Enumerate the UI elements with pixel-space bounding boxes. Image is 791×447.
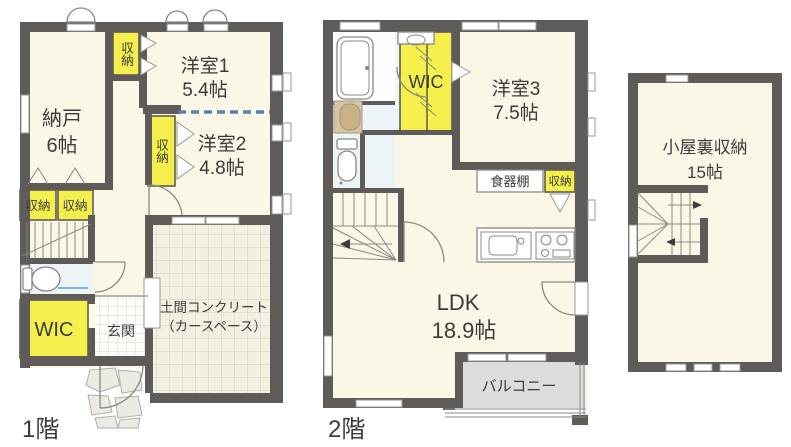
floor2-walls-part: [452, 162, 575, 170]
casement-window-icons-part: [283, 73, 291, 91]
stone-path-part: [118, 370, 142, 393]
attic-windows-part: [666, 364, 686, 371]
washroom-sink-icon-part: [398, 32, 434, 44]
toilet-2f-icon-part: [337, 139, 357, 149]
floor1-walls-part: [143, 105, 181, 114]
attic-walls-part: [628, 255, 708, 263]
floor1-windows-part: [272, 75, 282, 91]
attic-room-size: 15帖: [687, 163, 723, 182]
floor2-windows-part: [588, 200, 595, 220]
floor2-windows-part: [462, 22, 498, 30]
attic-walls-part: [628, 73, 782, 83]
room-label-yoshitsu2: 洋室2: [198, 133, 247, 155]
doma-label-line1: 土間コンクリート: [160, 300, 268, 315]
attic-walls-part: [628, 73, 638, 372]
floor2-walls-part: [360, 130, 452, 135]
attic-walls-part: [700, 218, 708, 263]
floor2-windows-part: [588, 73, 595, 91]
floor1-walls-part: [20, 356, 150, 366]
room-label-nando: 納戸: [42, 107, 82, 130]
floor1-walls-part: [113, 75, 139, 81]
genkan-label: 玄関: [107, 323, 135, 339]
floor1-walls-part: [145, 114, 152, 185]
bathtub-icon-part: [365, 66, 369, 70]
toilet-2f-icon: [337, 139, 357, 185]
washroom-sink-icon: [398, 32, 434, 45]
floor2-windows-part: [340, 22, 380, 30]
floor1-windows-part: [21, 95, 29, 133]
floor1-windows-part: [206, 217, 239, 224]
closet-mid-label: 収納: [154, 139, 168, 164]
stone-path-part: [95, 416, 118, 428]
attic-windows-part: [629, 225, 637, 257]
floor1-walls-part: [20, 22, 283, 32]
floor2-windows-part: [468, 354, 506, 361]
floor1-walls-part: [150, 393, 283, 403]
window-hood-icons-part: [203, 10, 227, 22]
room-size-yoshitsu2: 4.8帖: [199, 157, 244, 179]
floor2-walls-part: [333, 188, 403, 193]
casement-window-icons-part: [283, 194, 291, 214]
floor1-plan: 納戸 6帖 洋室1 5.4帖 洋室2 4.8帖 収納 収納 収納 収納 WIC …: [20, 8, 291, 443]
room-size-yoshitsu3: 7.5帖: [493, 102, 538, 124]
floor2-walls-part: [360, 130, 365, 188]
room-label-yoshitsu1: 洋室1: [181, 55, 230, 77]
cupboard-label: 食器棚: [490, 174, 529, 189]
toilet-1f-icon-part: [32, 267, 60, 291]
floor1-windows-part: [272, 125, 282, 141]
floor1-walls-part: [88, 294, 95, 304]
wic-1f-label: WIC: [35, 319, 74, 341]
floor1-walls-part: [88, 215, 95, 262]
floor1-windows-part: [204, 24, 228, 31]
floor1-windows-part: [172, 217, 205, 224]
floor2-windows-part: [499, 22, 536, 30]
doma-label-line2: （カースペース）: [161, 319, 267, 334]
floor1-label: 1階: [22, 416, 59, 443]
floor2-windows-part: [508, 354, 546, 361]
floor-plan-image: 納戸 6帖 洋室1 5.4帖 洋室2 4.8帖 収納 収納 収納 収納 WIC …: [0, 0, 791, 447]
floor2-walls-part: [455, 352, 463, 408]
toilet-2f-icon-part: [338, 151, 356, 181]
washer-icon: [334, 101, 362, 133]
floor2-windows-part: [324, 336, 332, 376]
attic-windows-part: [720, 364, 740, 371]
toilet-1f-icon-part: [23, 268, 32, 290]
floor2-windows-part: [588, 118, 595, 136]
window-hood-icons-part: [166, 11, 188, 22]
floor2-walls-part: [452, 20, 460, 170]
attic-windows-part: [666, 75, 688, 82]
genkan-side-door: [144, 278, 160, 328]
floor2-windows-part: [356, 400, 402, 407]
closet-2f-label: 収納: [549, 175, 572, 188]
wic-2f-label: WIC: [409, 72, 444, 92]
floor1-walls-part: [88, 328, 95, 366]
room-size-ldk: 18.9帖: [432, 318, 497, 343]
floor1-walls-part: [20, 258, 93, 264]
stone-path: [86, 368, 142, 428]
closet-left1-label: 収納: [25, 199, 50, 213]
floor1-walls-part: [20, 183, 105, 190]
window-hood-icons: [67, 8, 227, 22]
attic-plan: 小屋裏収納 15帖: [628, 73, 782, 372]
stone-path-part: [115, 396, 142, 418]
floor1-windows-part: [272, 196, 282, 214]
floor1-walls-part: [105, 22, 113, 190]
stone-path-part: [118, 418, 140, 428]
floor1-windows-part: [67, 24, 95, 31]
room-label-yoshitsu3: 洋室3: [492, 78, 541, 100]
toilet-2f-icon-part: [340, 182, 343, 185]
floor-plan-svg: 納戸 6帖 洋室1 5.4帖 洋室2 4.8帖 収納 収納 収納 収納 WIC …: [0, 0, 791, 447]
window-hood-icons-part: [67, 8, 95, 22]
floor2-windows-part: [575, 282, 588, 315]
floor1-walls-part: [20, 294, 95, 300]
closet-top-label: 収納: [119, 42, 133, 67]
balcony-label: バルコニー: [482, 378, 557, 395]
room-size-yoshitsu1: 5.4帖: [182, 79, 227, 101]
kitchen-counter-icon: [477, 228, 575, 262]
casement-window-icons: [283, 73, 291, 214]
floor1-walls-part: [20, 22, 30, 368]
floor2-plan: WIC 洋室3 7.5帖 LDK 18.9帖 食器棚 収納 バルコニー 2階: [323, 20, 595, 443]
attic-walls-part: [628, 185, 708, 193]
attic-room-label: 小屋裏収納: [663, 137, 748, 157]
room-size-nando: 6帖: [46, 134, 77, 157]
stone-path-part: [86, 368, 120, 392]
casement-window-icons-part: [283, 123, 291, 141]
washer-icon-part: [340, 104, 360, 130]
floor1-windows-part: [167, 24, 188, 31]
room-label-ldk: LDK: [437, 290, 480, 315]
floor2-walls-part: [398, 188, 404, 262]
attic-windows-part: [694, 364, 712, 371]
closet-left2-label: 収納: [62, 199, 87, 213]
attic-walls-part: [772, 73, 782, 372]
floor2-label: 2階: [328, 416, 365, 443]
